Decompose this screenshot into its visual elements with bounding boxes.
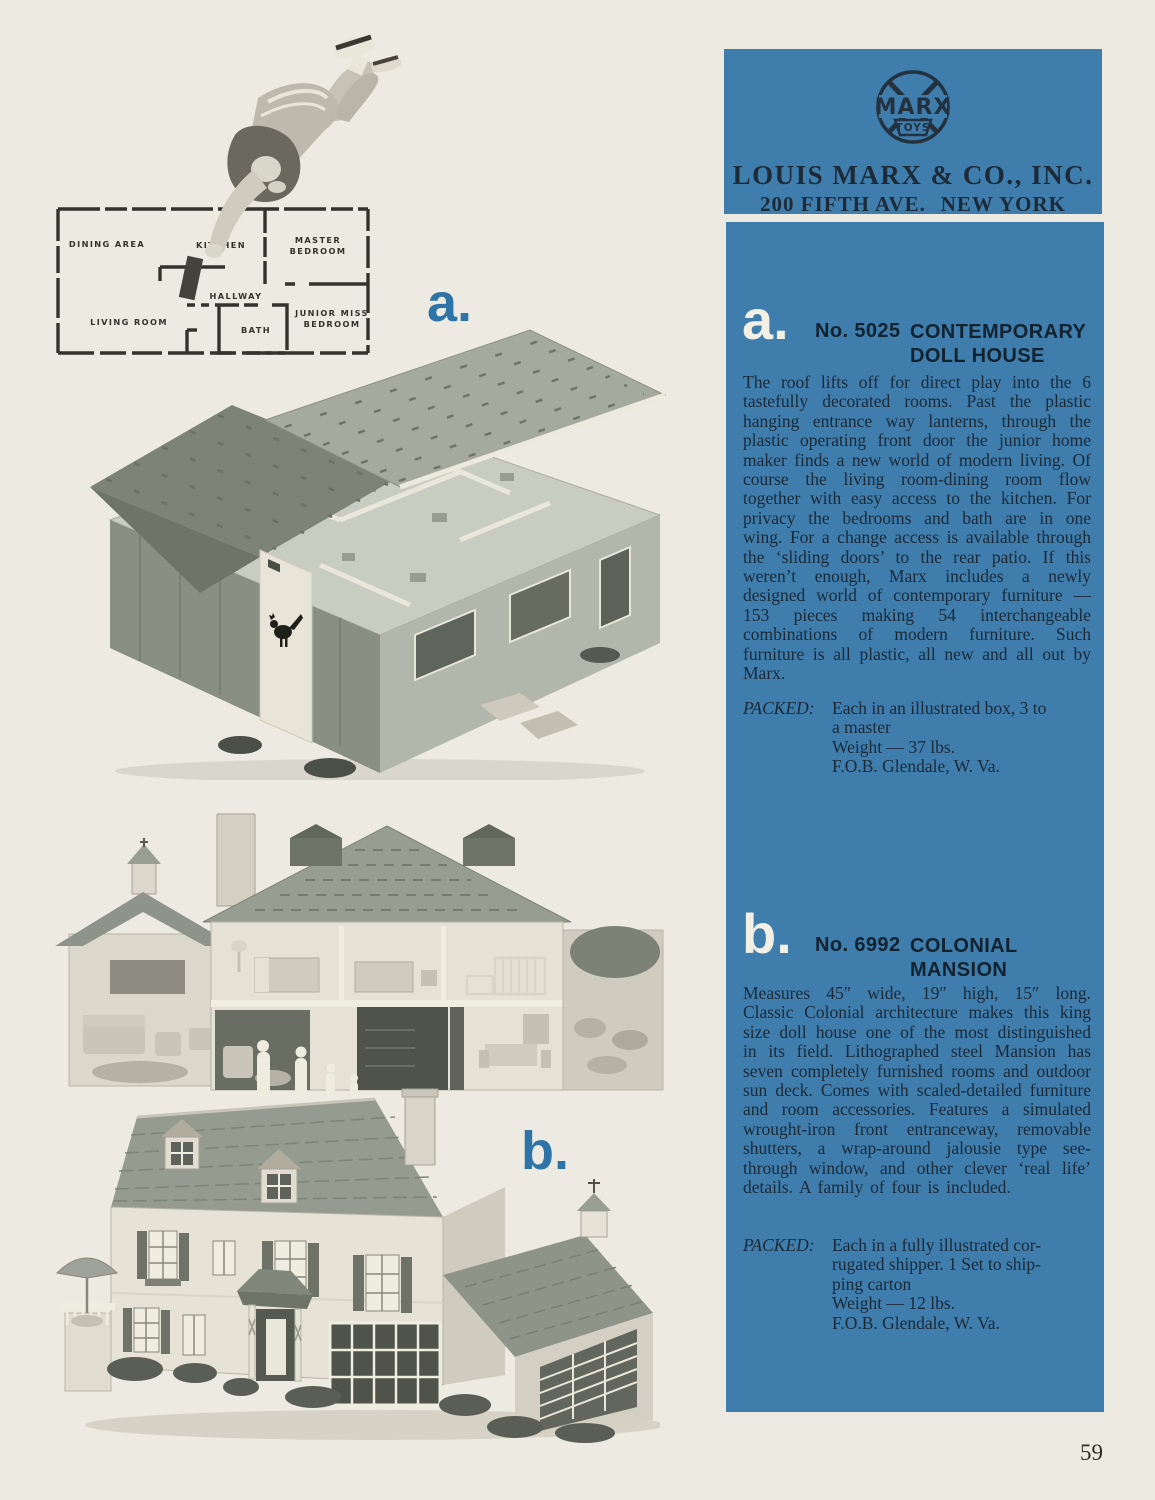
product-info-panel: a. No. 5025 CONTEMPORARY DOLL HOUSE The … [726,222,1104,1412]
brand-header-box: MARX TOYS LOUIS MARX & CO., INC. 200 FIF… [724,49,1102,214]
product-b-number: No. 6992 [815,934,900,957]
product-b-packed: PACKED: Each in a fully illustrated cor-… [743,1236,1091,1333]
product-a-packed: PACKED: Each in an illustrated box, 3 to… [743,699,1091,777]
colonial-mansion-exterior-photo [45,1075,660,1450]
page-number: 59 [1080,1440,1103,1466]
girl-photo [165,22,435,272]
product-a-marker: a. [742,292,789,348]
product-b-name: COLONIAL MANSION [910,934,1018,982]
room-label-dining: DINING AREA [69,239,145,249]
packed-label: PACKED: [743,1236,832,1333]
company-name: LOUIS MARX & CO., INC. [724,160,1102,191]
product-b-description: Measures 45″ wide, 19″ high, 15″ long. C… [743,984,1091,1197]
company-address: 200 FIFTH AVE. NEW YORK [724,192,1102,217]
logo-brand-text: MARX [875,95,952,120]
catalog-page: DINING AREA KITCHEN MASTER BEDROOM HALLW… [0,0,1155,1500]
packed-label: PACKED: [743,699,832,777]
address-city: NEW YORK [941,192,1066,217]
picture-window [330,1323,440,1405]
room-label-junior: JUNIOR MISS [294,308,369,318]
room-label-hallway: HALLWAY [210,291,263,301]
address-street: 200 FIFTH AVE. [760,192,926,217]
product-a-number: No. 5025 [815,320,900,343]
marx-toys-logo: MARX TOYS [853,61,973,153]
logo-sub-text: TOYS [896,122,931,134]
product-b-marker: b. [742,906,792,962]
product-a-description: The roof lifts off for direct play into … [743,373,1091,684]
packed-details: Each in an illustrated box, 3 to a maste… [832,699,1046,777]
contemporary-dollhouse-photo [80,325,670,780]
packed-details: Each in a fully illustrated cor- rugated… [832,1236,1041,1333]
product-a-name: CONTEMPORARY DOLL HOUSE [910,320,1086,368]
colonial-mansion-cutaway-photo [55,800,670,1100]
lower-windows [123,1308,205,1355]
figure-marker-a: a. [427,276,472,330]
